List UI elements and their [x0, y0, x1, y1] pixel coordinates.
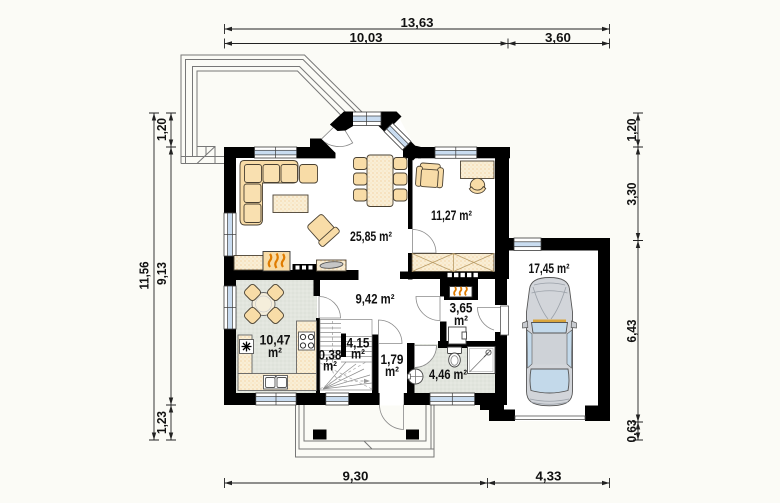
svg-text:1,20: 1,20	[625, 118, 639, 141]
svg-text:13,63: 13,63	[401, 16, 434, 30]
svg-text:11,27 m²: 11,27 m²	[431, 208, 472, 223]
svg-text:4,46 m²: 4,46 m²	[429, 367, 467, 382]
svg-text:17,45 m²: 17,45 m²	[529, 261, 570, 276]
svg-text:m²: m²	[351, 347, 365, 362]
svg-text:m²: m²	[385, 364, 399, 379]
svg-text:m²: m²	[268, 345, 282, 360]
svg-text:m²: m²	[454, 313, 468, 328]
svg-text:9,42 m²: 9,42 m²	[356, 292, 395, 307]
svg-text:9,30: 9,30	[343, 470, 369, 484]
svg-text:6,43: 6,43	[625, 319, 639, 342]
svg-text:0,63: 0,63	[625, 419, 639, 442]
svg-text:4,33: 4,33	[536, 470, 562, 484]
svg-text:11,56: 11,56	[138, 261, 152, 289]
svg-text:9,13: 9,13	[155, 262, 169, 285]
svg-text:25,85 m²: 25,85 m²	[350, 229, 392, 244]
svg-text:10,03: 10,03	[350, 31, 383, 45]
svg-text:3,30: 3,30	[625, 182, 639, 205]
svg-text:3,60: 3,60	[545, 31, 571, 45]
svg-text:1,20: 1,20	[155, 118, 169, 141]
svg-text:m²: m²	[323, 359, 337, 374]
svg-text:1,23: 1,23	[155, 411, 169, 434]
